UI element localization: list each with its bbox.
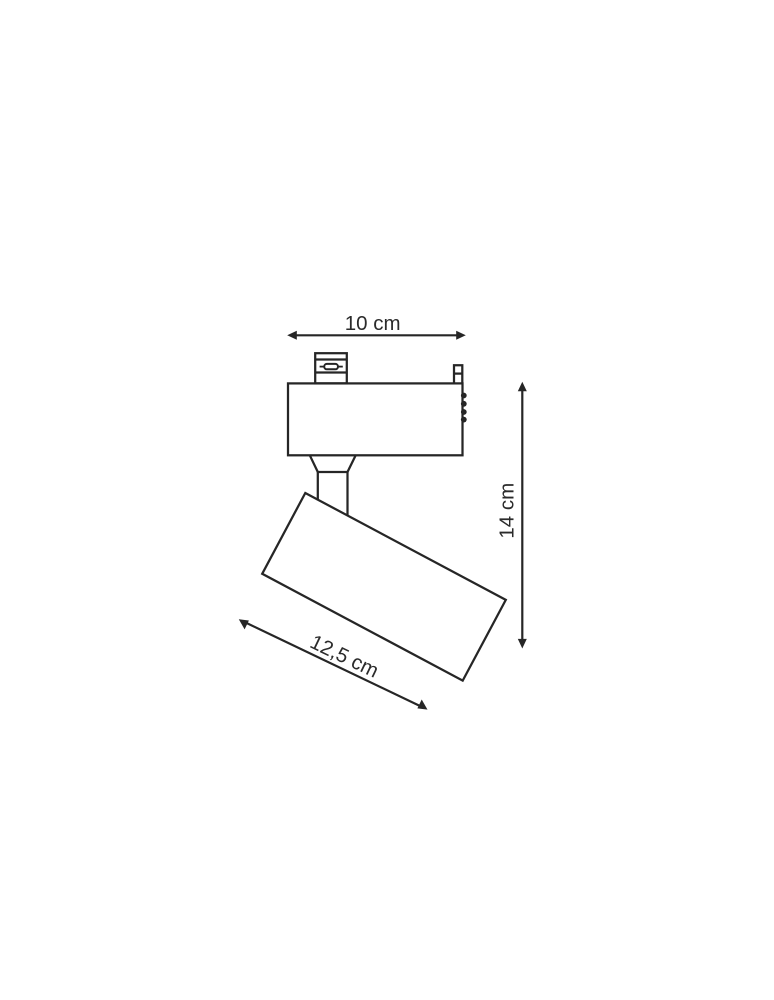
svg-text:12,5 cm: 12,5 cm [306,630,382,682]
svg-text:10 cm: 10 cm [345,312,401,335]
svg-text:14 cm: 14 cm [496,483,519,539]
